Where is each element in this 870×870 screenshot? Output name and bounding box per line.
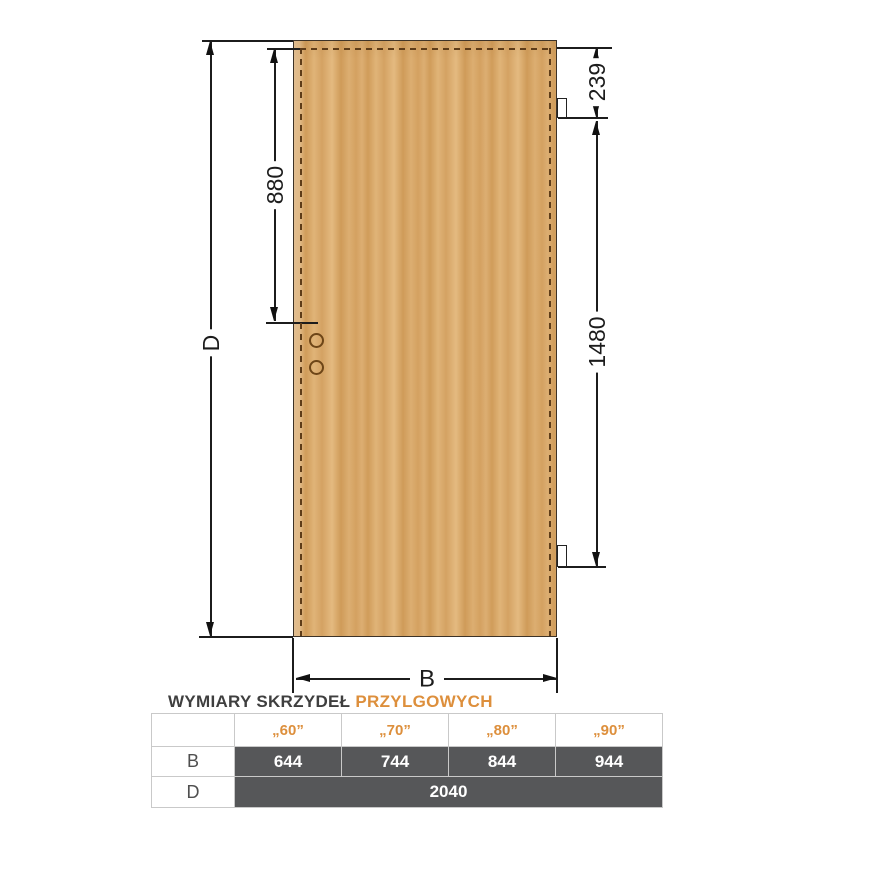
dim-1480-label: 1480 <box>585 311 609 372</box>
table-caption: WYMIARY SKRZYDEŁ PRZYLGOWYCH <box>168 692 493 712</box>
top-hinge <box>557 98 567 118</box>
row-b-value-90: 944 <box>556 747 663 777</box>
handle-hole-lower <box>309 360 324 375</box>
header-size-70: „70” <box>342 714 449 747</box>
dim-b-label: B <box>410 666 444 691</box>
dim-239-top-extension <box>557 47 612 49</box>
door-sizes-table: „60” „70” „80” „90” B 644 744 844 944 D … <box>151 713 663 808</box>
door-leaf <box>293 40 557 637</box>
dim-d-arrow-up <box>206 41 214 55</box>
header-empty-cell <box>152 714 235 747</box>
dim-d-bottom-extension <box>199 636 293 638</box>
dim-b-arrow-left <box>296 674 310 682</box>
caption-dark-part: WYMIARY SKRZYDEŁ <box>168 692 350 711</box>
table-row-b: B 644 744 844 944 <box>152 747 663 777</box>
dim-880-bottom-extension <box>266 322 318 324</box>
dim-880-label: 880 <box>263 161 287 209</box>
row-b-value-60: 644 <box>235 747 342 777</box>
bottom-hinge <box>557 545 567 567</box>
row-d-value: 2040 <box>235 777 663 808</box>
dim-d-top-extension <box>202 40 293 42</box>
dim-239-label: 239 <box>585 58 609 106</box>
dim-b-arrow-right <box>543 674 557 682</box>
door-dimension-diagram: D 880 239 1480 B WYMIARY SKRZYDEŁ PRZYLG… <box>0 0 870 870</box>
row-b-value-80: 844 <box>449 747 556 777</box>
header-size-90: „90” <box>556 714 663 747</box>
dim-d-arrow-down <box>206 622 214 636</box>
row-b-value-70: 744 <box>342 747 449 777</box>
dim-1480-arrow-up <box>592 121 600 135</box>
header-size-80: „80” <box>449 714 556 747</box>
row-b-label: B <box>152 747 235 777</box>
dim-880-arrow-up <box>270 49 278 63</box>
caption-orange-part: PRZYLGOWYCH <box>355 692 492 711</box>
rebate-dashed-line-right <box>549 48 551 636</box>
dim-b-right-extension <box>556 638 558 693</box>
row-d-label: D <box>152 777 235 808</box>
table-row-d: D 2040 <box>152 777 663 808</box>
dim-1480-arrow-down <box>592 552 600 566</box>
table-header-row: „60” „70” „80” „90” <box>152 714 663 747</box>
handle-hole-upper <box>309 333 324 348</box>
dim-880-arrow-down <box>270 307 278 321</box>
header-size-60: „60” <box>235 714 342 747</box>
dim-b-left-extension <box>292 638 294 693</box>
rebate-dashed-line-left <box>300 48 302 636</box>
rebate-dashed-line-top <box>300 48 551 50</box>
dim-d-label: D <box>199 330 223 357</box>
